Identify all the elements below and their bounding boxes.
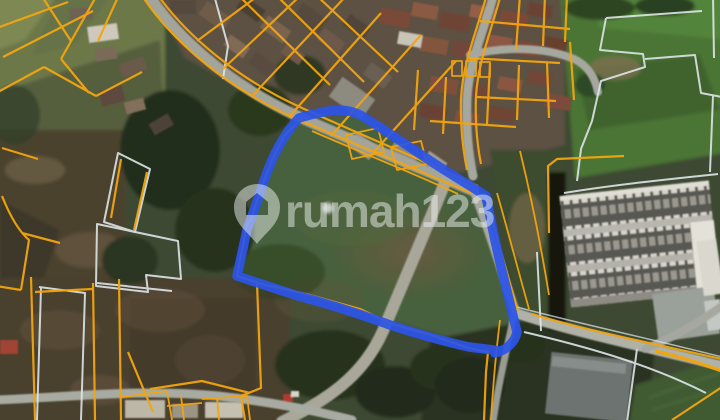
watermark-text: rumah123 (285, 185, 494, 237)
map-canvas[interactable]: rumah123 (0, 0, 720, 420)
